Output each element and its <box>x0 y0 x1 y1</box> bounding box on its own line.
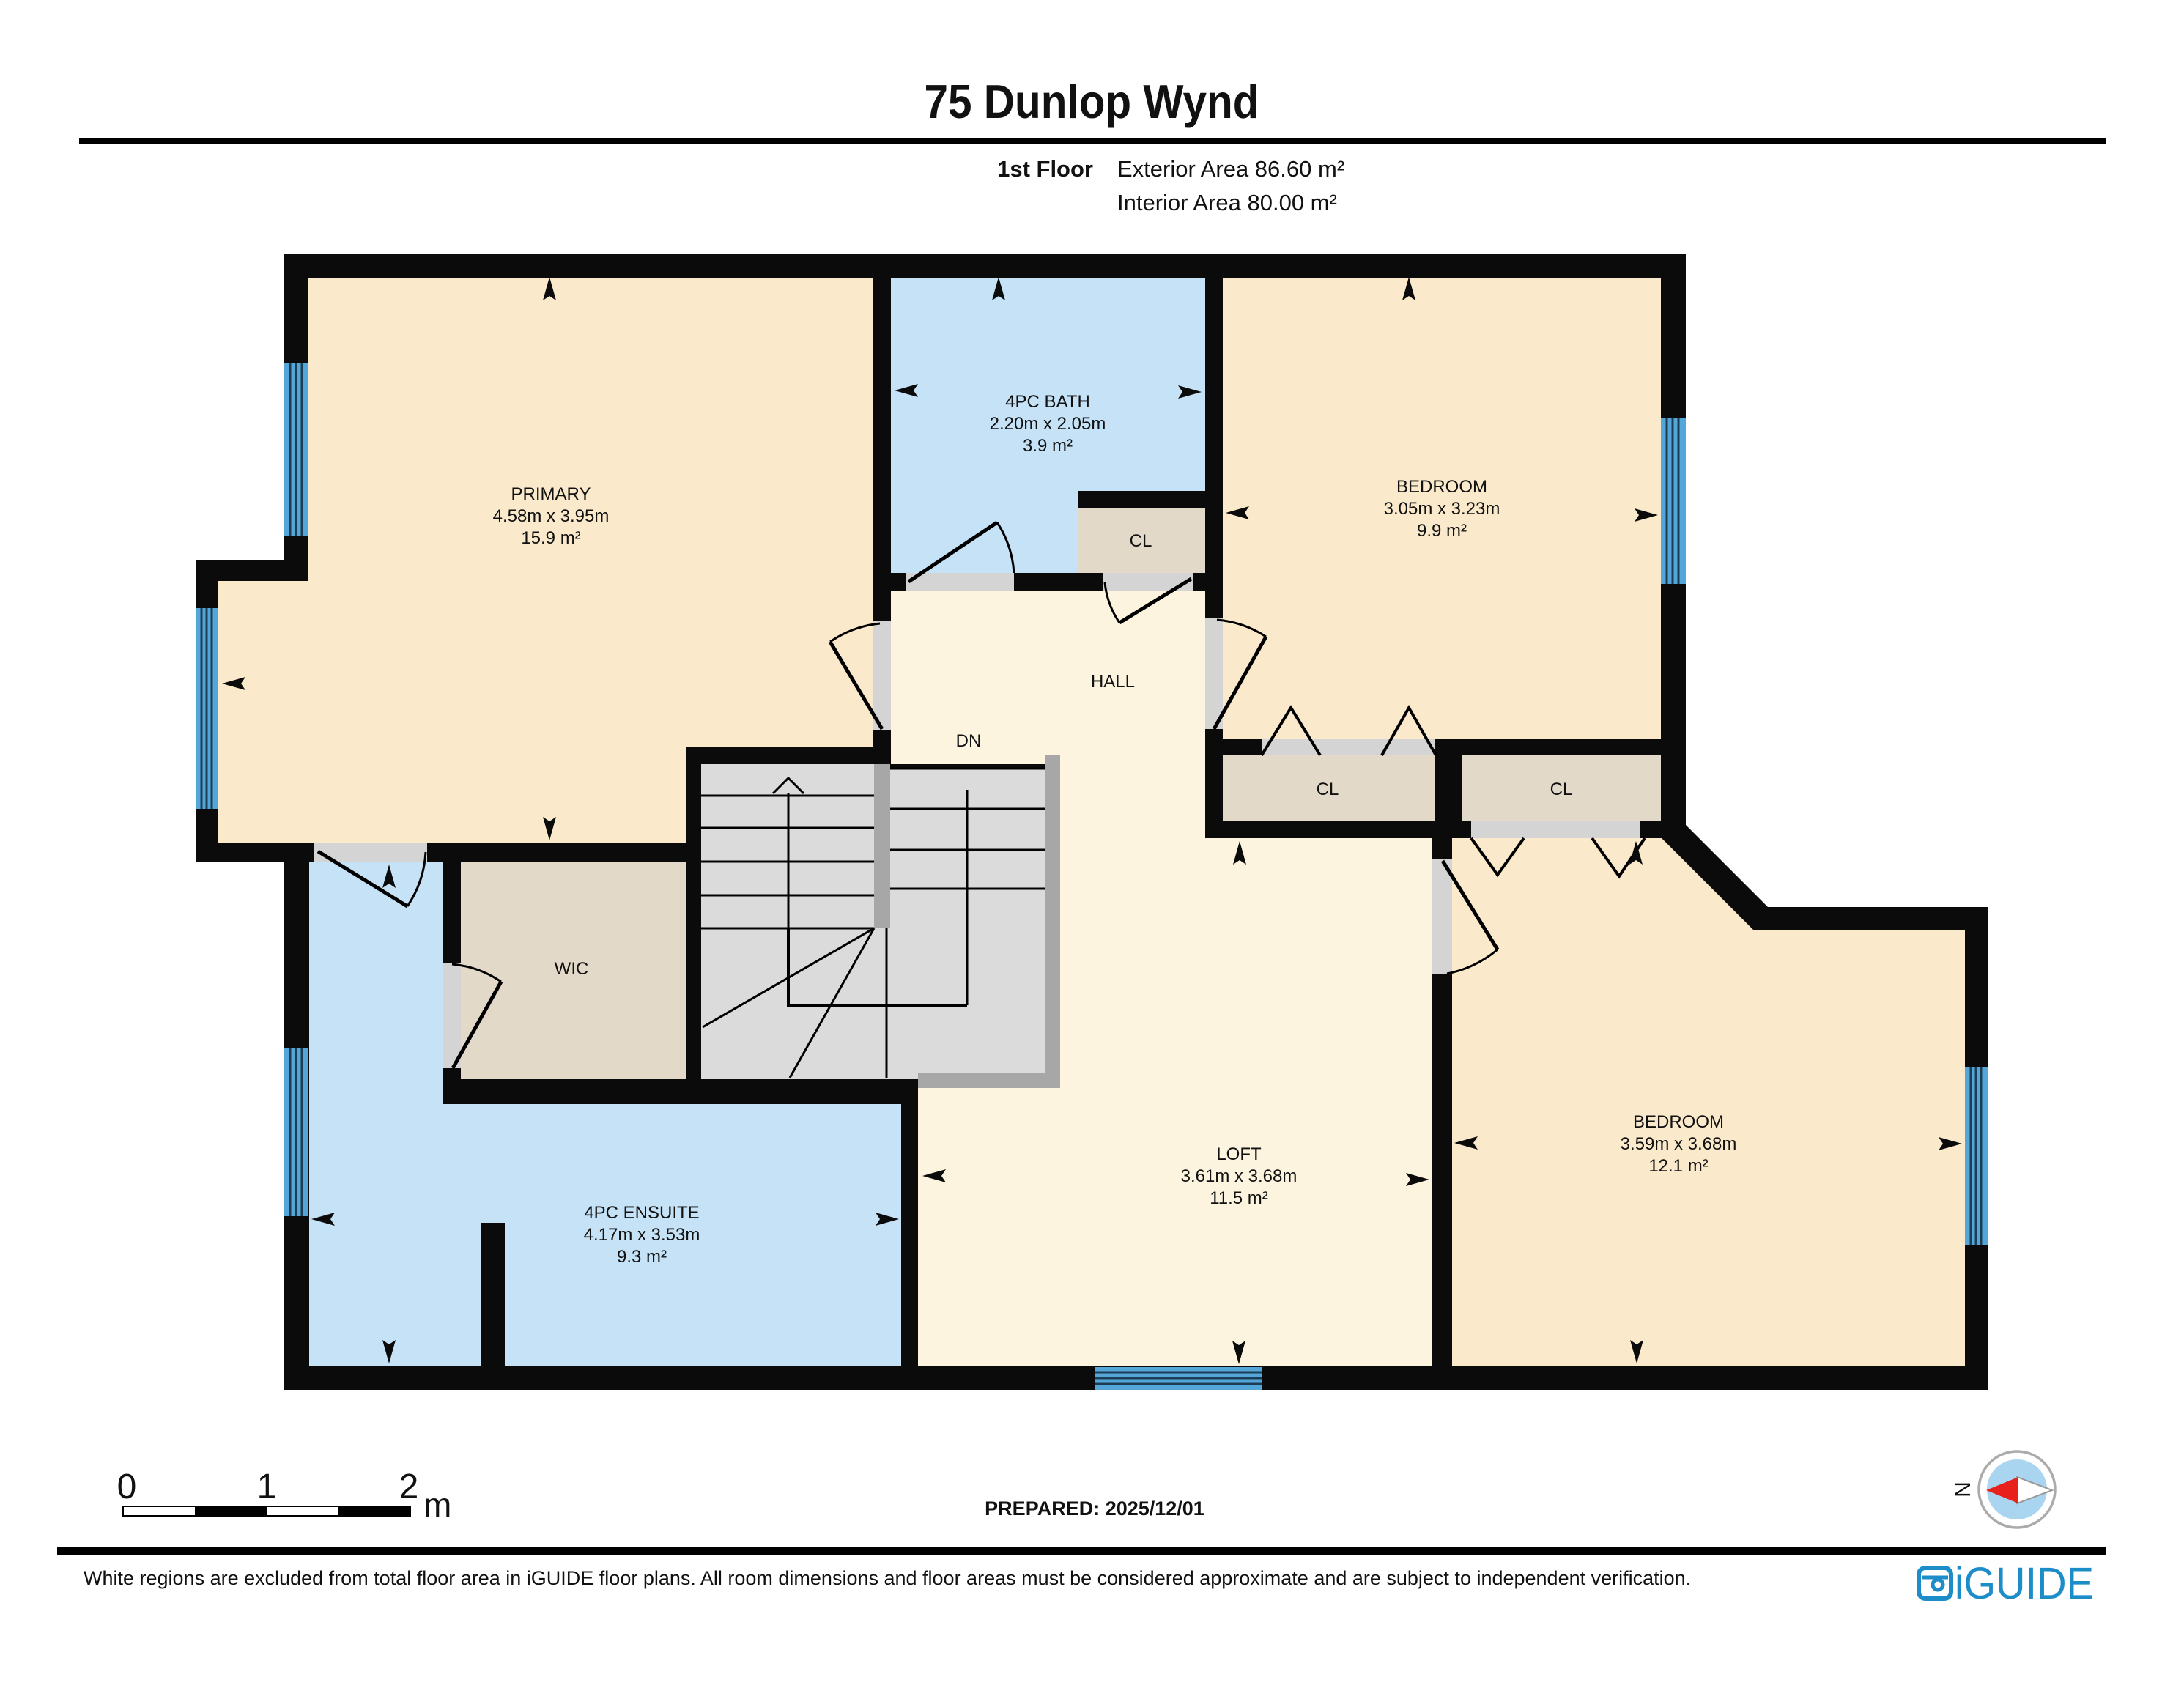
svg-text:0: 0 <box>117 1467 137 1506</box>
svg-text:Exterior Area 86.60 m²: Exterior Area 86.60 m² <box>1117 156 1344 182</box>
svg-text:15.9 m²: 15.9 m² <box>521 528 580 548</box>
svg-text:9.9 m²: 9.9 m² <box>1417 521 1467 541</box>
svg-text:PREPARED: 2025/12/01: PREPARED: 2025/12/01 <box>985 1498 1204 1519</box>
svg-text:LOFT: LOFT <box>1216 1144 1262 1164</box>
svg-text:CL: CL <box>1550 780 1573 799</box>
svg-text:CL: CL <box>1317 780 1339 799</box>
svg-text:2.20m x 2.05m: 2.20m x 2.05m <box>990 414 1106 434</box>
svg-text:BEDROOM: BEDROOM <box>1396 477 1487 497</box>
svg-text:CL: CL <box>1130 531 1152 551</box>
svg-text:BEDROOM: BEDROOM <box>1633 1112 1724 1132</box>
svg-text:1: 1 <box>257 1467 277 1506</box>
svg-text:HALL: HALL <box>1091 672 1135 692</box>
svg-text:3.9 m²: 3.9 m² <box>1023 436 1073 456</box>
svg-text:PRIMARY: PRIMARY <box>511 484 591 504</box>
svg-text:N: N <box>1951 1481 1975 1498</box>
svg-text:4PC ENSUITE: 4PC ENSUITE <box>584 1203 699 1223</box>
svg-text:4.17m x 3.53m: 4.17m x 3.53m <box>584 1225 700 1245</box>
svg-text:White regions are excluded fro: White regions are excluded from total fl… <box>84 1567 1691 1589</box>
svg-text:3.05m x 3.23m: 3.05m x 3.23m <box>1384 499 1500 519</box>
svg-text:12.1 m²: 12.1 m² <box>1648 1156 1708 1176</box>
svg-text:Interior Area 80.00 m²: Interior Area 80.00 m² <box>1117 190 1337 215</box>
svg-text:1st Floor: 1st Floor <box>997 156 1093 182</box>
svg-text:9.3 m²: 9.3 m² <box>617 1247 667 1267</box>
svg-text:2: 2 <box>399 1467 419 1506</box>
svg-text:75 Dunlop Wynd: 75 Dunlop Wynd <box>925 75 1259 128</box>
svg-text:iGUIDE: iGUIDE <box>1955 1558 2094 1608</box>
svg-text:3.59m x 3.68m: 3.59m x 3.68m <box>1621 1134 1737 1154</box>
svg-text:3.61m x 3.68m: 3.61m x 3.68m <box>1181 1166 1298 1186</box>
svg-text:11.5 m²: 11.5 m² <box>1210 1188 1268 1208</box>
svg-text:m: m <box>423 1486 451 1524</box>
svg-text:4PC BATH: 4PC BATH <box>1005 392 1090 412</box>
svg-text:4.58m x 3.95m: 4.58m x 3.95m <box>493 506 610 526</box>
svg-text:DN: DN <box>956 731 982 751</box>
svg-text:WIC: WIC <box>555 959 589 979</box>
